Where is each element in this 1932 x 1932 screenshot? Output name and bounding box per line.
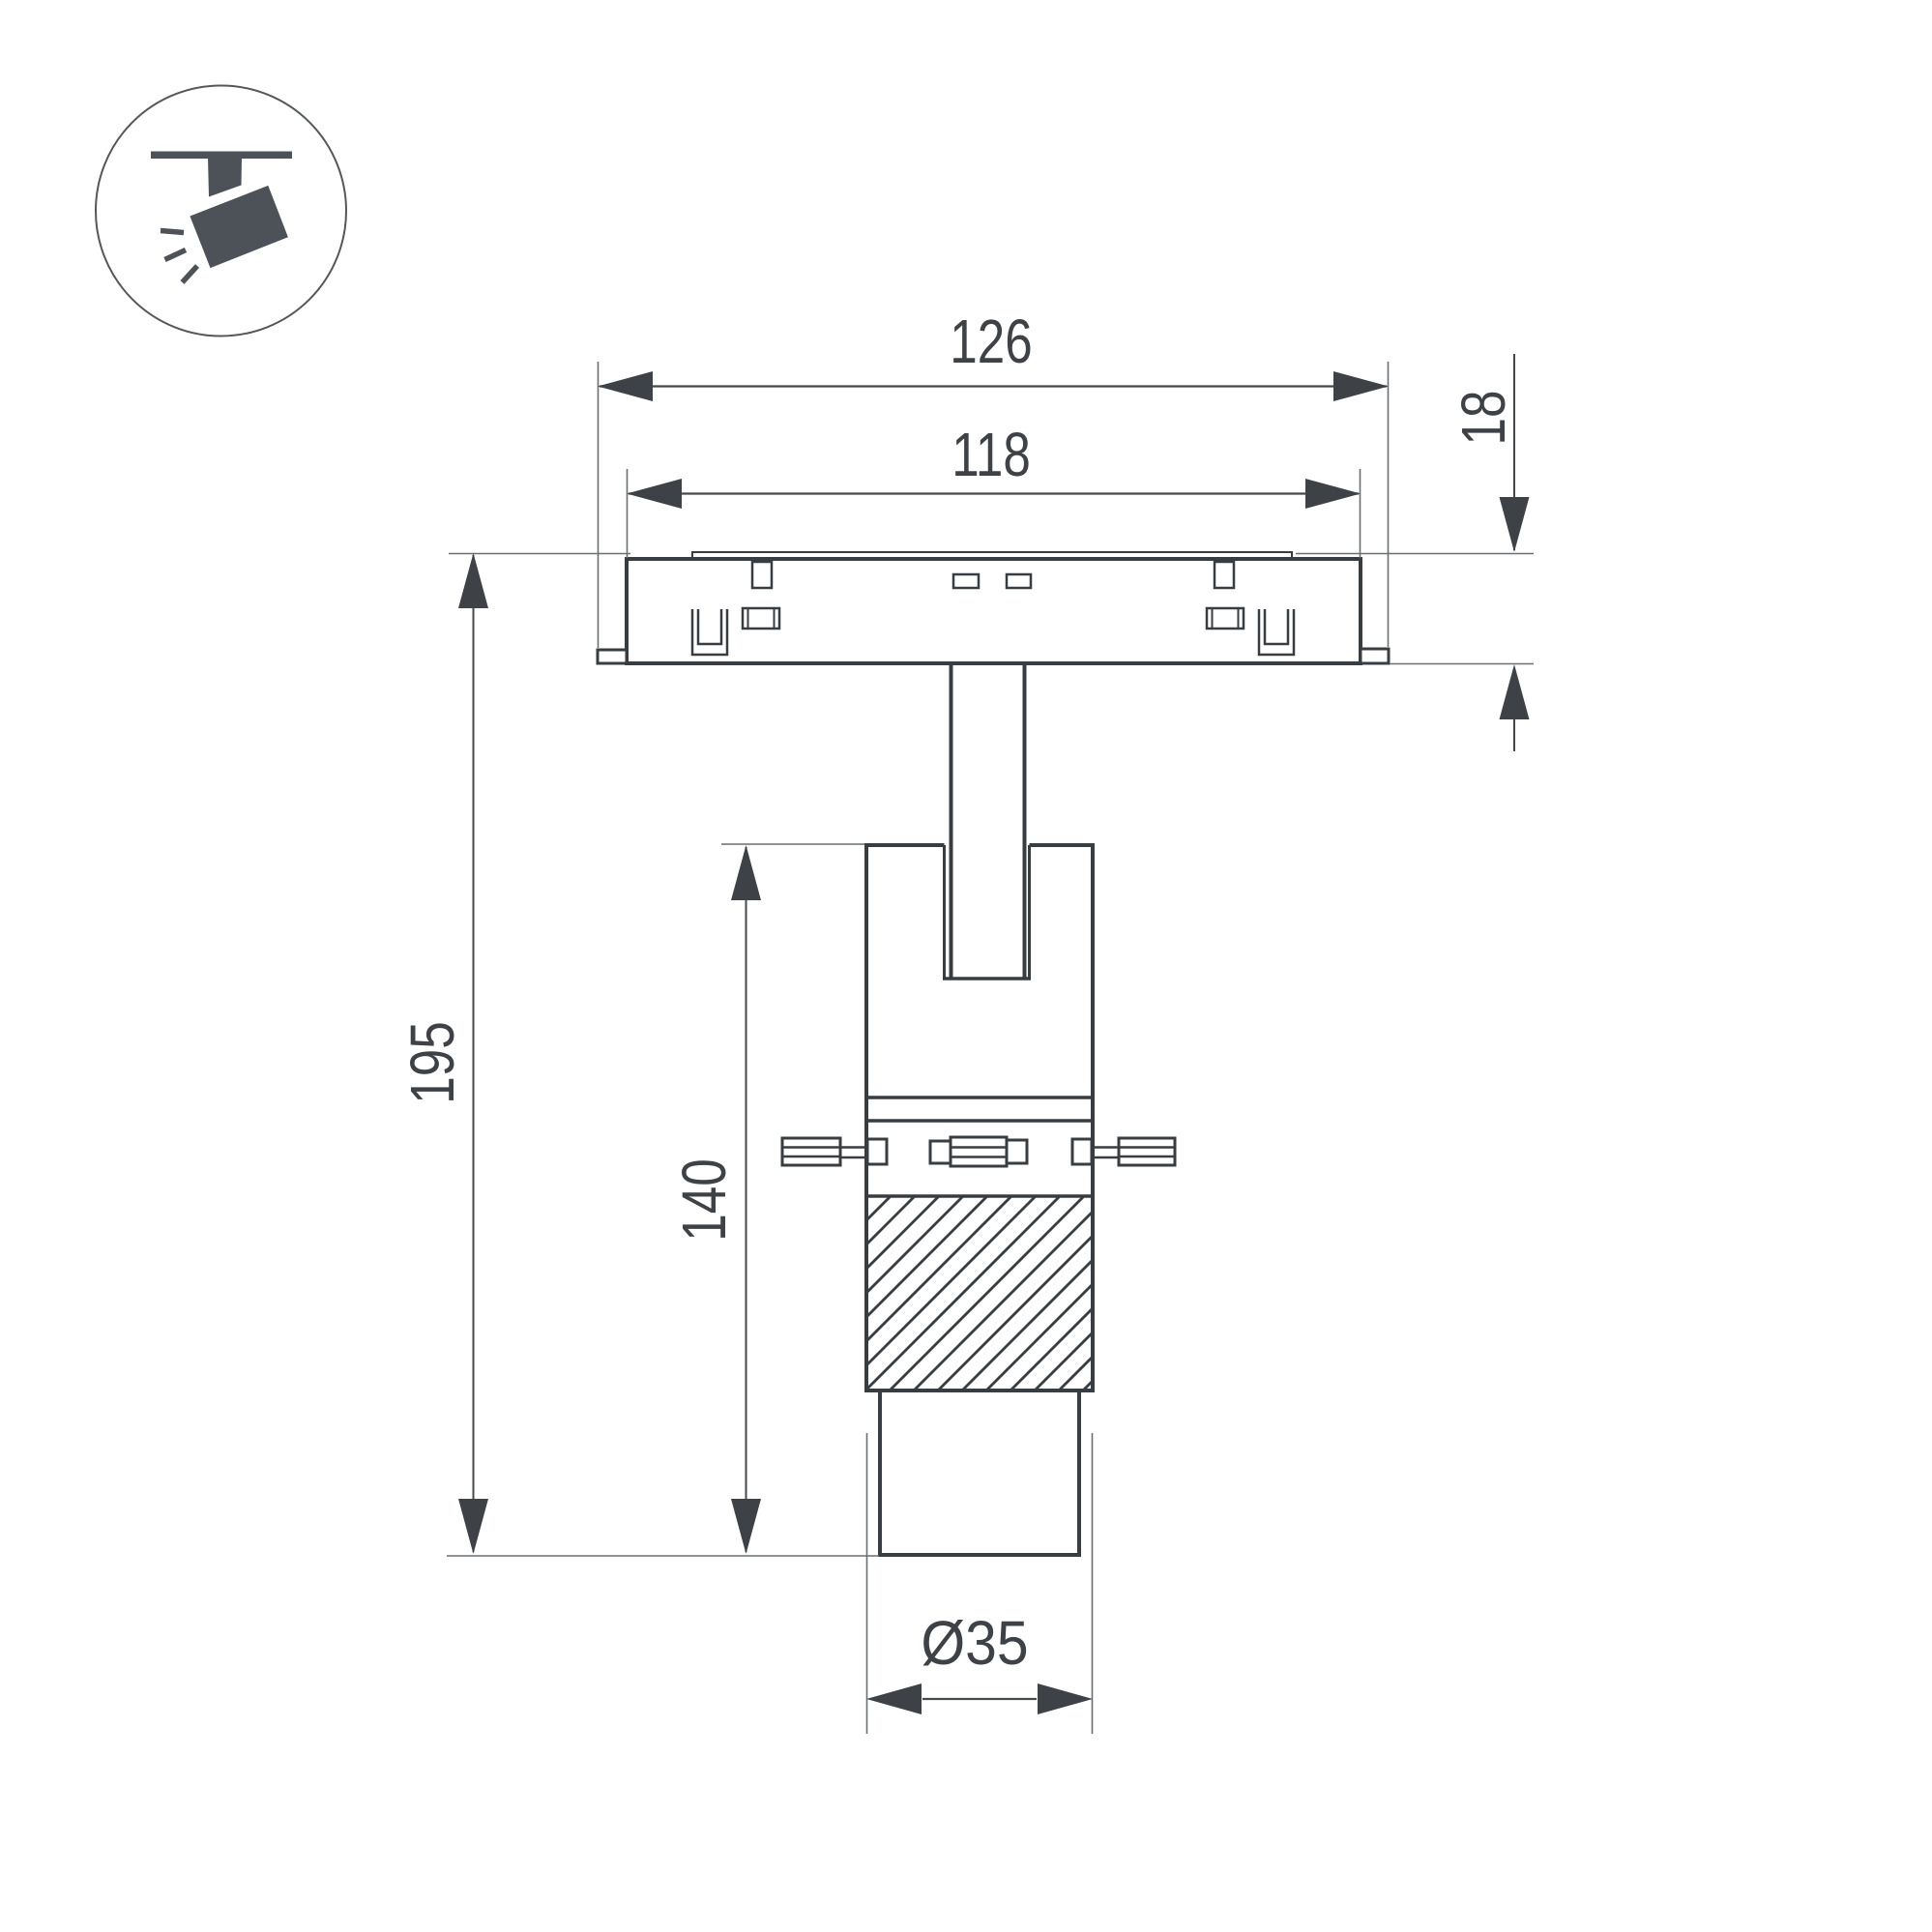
svg-text:140: 140 bbox=[671, 1158, 740, 1241]
svg-text:195: 195 bbox=[399, 1021, 468, 1103]
svg-text:118: 118 bbox=[951, 422, 1031, 490]
svg-text:18: 18 bbox=[1450, 391, 1519, 446]
svg-text:126: 126 bbox=[950, 308, 1032, 377]
svg-text:Ø35: Ø35 bbox=[921, 1609, 1028, 1679]
